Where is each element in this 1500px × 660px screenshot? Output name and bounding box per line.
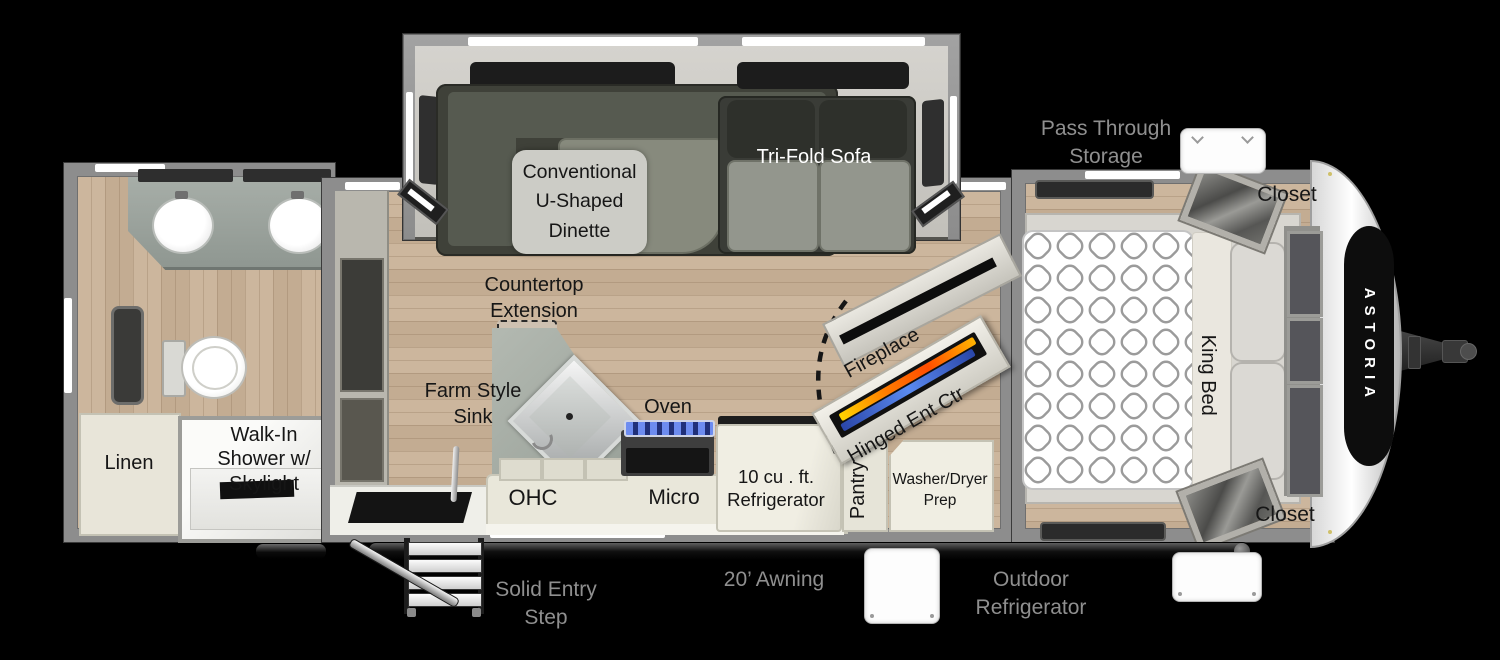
door-latch-icon-1 [1191,131,1204,144]
countertop-line2: Extension [460,298,608,324]
sink-right [268,197,330,254]
toilet-seat-line [192,346,238,390]
closet-top-label: Closet [1248,181,1326,209]
stove-burner-strip [624,420,715,437]
shower-line2: Shower w/ [200,447,328,471]
headboard-panel-2 [1287,318,1323,384]
bed-pillow-top [1230,242,1286,362]
dinette-bench-left [448,92,516,246]
sink-left [152,197,214,254]
faucet-left-icon [175,191,188,199]
hitch-ball-tip [1460,343,1477,360]
shower-line1: Walk-In [200,423,328,447]
bedroom-topwall-window-strip [1085,171,1180,179]
awning-label: 20’ Awning [694,566,854,594]
bedroom-bottom-window [1040,522,1166,541]
dinette-label: Conventional U-Shaped Dinette [512,158,647,246]
outdoor-line1: Outdoor [950,566,1112,594]
sofa-seat-cushion-left [727,160,819,252]
entry-step-tread-2 [408,559,482,573]
vanity-mirror-left [138,169,233,182]
awning-rail [368,542,1250,561]
washer-dryer-label: Washer/Dryer Prep [888,470,992,512]
door-latch-icon-2 [1241,131,1254,144]
fridge-line2: Refrigerator [717,488,835,511]
dinette-line1: Conventional [512,158,647,187]
oven-label: Oven [633,394,703,420]
sofa-seat-cushion-right [819,160,911,252]
baggage-door-center [864,548,940,624]
slideout-rightwindow [950,96,957,184]
king-bed-label: King Bed [1195,315,1221,435]
ohc-label: OHC [500,483,566,512]
solid-entry-step-label: Solid Entry Step [468,576,624,631]
bedroom-top-window [1035,180,1154,199]
outdoor-door-screw-1 [1178,592,1182,596]
linen-label: Linen [89,450,169,476]
pass-through-storage-label: Pass Through Storage [1020,115,1192,170]
outdoor-refrigerator-door [1172,552,1262,602]
step-line2: Step [468,604,624,632]
wall-cabinet-recess-lower [340,398,384,482]
pass-through-storage-door [1180,128,1266,174]
faucet-right-icon [291,191,304,199]
slideout-leftwindow [406,92,413,184]
walk-in-shower-label: Walk-In Shower w/ Skylight [200,423,328,496]
washer-line1: Washer/Dryer [888,470,992,491]
oven-front [626,448,709,473]
farm-sink-drain-icon [566,413,573,420]
headboard-panel-1 [1287,231,1323,317]
slideout-topwindow-right [742,37,925,46]
vanity-mirror-right [243,169,331,182]
cap-screw-top [1328,172,1332,176]
farm-style-sink-label: Farm Style Sink [408,378,538,431]
outdoor-line2: Refrigerator [950,594,1112,622]
headboard-panel-3 [1287,385,1323,497]
fridge-line1: 10 cu . ft. [717,465,835,488]
dinette-line3: Dinette [512,217,647,246]
outdoor-refrigerator-label: Outdoor Refrigerator [950,566,1112,621]
countertop-extension-label: Countertop Extension [460,272,608,325]
cap-screw-bottom [1328,530,1332,534]
wall-cabinet-recess-upper [340,258,384,392]
sink-line2: Sink [408,404,538,430]
slideout-topwindow-left [468,37,698,46]
bathroom-rear-window [64,298,72,393]
floorplan-canvas: ASTORIA [0,0,1500,660]
king-bed-mattress [1022,230,1194,490]
pass-through-line2: Storage [1020,143,1192,171]
step-line1: Solid Entry [468,576,624,604]
sink-line1: Farm Style [408,378,538,404]
micro-label: Micro [634,484,714,512]
tri-fold-sofa-label: Tri-Fold Sofa [740,144,888,170]
countertop-line1: Countertop [460,272,608,298]
baggage-door-screw-2 [930,614,934,618]
baggage-door-screw-1 [870,614,874,618]
shower-line3: Skylight [200,472,328,496]
dinette-line2: U-Shaped [512,187,647,216]
entry-step-foot-left [407,608,416,617]
overhead-cabinet-door-1 [499,458,542,481]
refrigerator-label: 10 cu . ft. Refrigerator [717,465,835,511]
slideout-end-window-right [922,99,944,187]
entry-step-tread-1 [408,542,482,556]
main-topwall-window-right [958,182,1006,190]
hitch-jack [1408,336,1421,369]
brand-text: ASTORIA [1359,271,1379,421]
bathroom-side-window [111,306,144,405]
overhead-cabinet-door-2 [542,458,585,481]
main-topwall-window-left [345,182,400,190]
sofa-window [737,62,909,89]
washer-line2: Prep [888,491,992,512]
pass-through-line1: Pass Through [1020,115,1192,143]
outdoor-door-screw-2 [1252,592,1256,596]
closet-bottom-label: Closet [1246,501,1324,529]
bumper-bar [256,544,326,559]
